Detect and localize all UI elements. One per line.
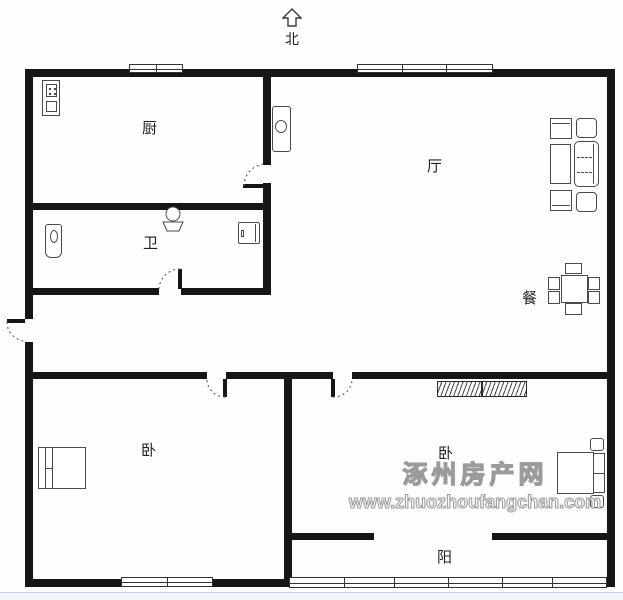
- entrance-door-leaf: [7, 319, 25, 323]
- sofa-cushion-line: [577, 172, 592, 173]
- wall-kitchen-bath: [25, 203, 271, 210]
- window-divider: [156, 65, 157, 72]
- wall-right: [607, 69, 615, 587]
- bedroom-right-door-arc: [333, 379, 352, 397]
- room-label-balcony: 阳: [437, 550, 452, 565]
- window-divider: [446, 65, 447, 72]
- watermark-url: www.zhuozhoufangchan.com: [335, 492, 615, 513]
- window-divider: [448, 578, 449, 587]
- room-label-bedroom-left: 卧: [141, 443, 156, 458]
- window-divider: [167, 578, 168, 586]
- wall-central-upper: [263, 69, 271, 165]
- entrance-door-arc: [7, 322, 26, 341]
- room-label-bath: 卫: [143, 236, 158, 251]
- wall-top: [25, 69, 615, 77]
- dining-chair-icon: [588, 291, 600, 304]
- window-midline: [358, 69, 492, 70]
- fridge-icon: [272, 106, 291, 152]
- sofa-cushion-line: [577, 157, 592, 158]
- sofa-icon: [574, 141, 599, 187]
- bed-right-nightstand-top: [590, 438, 604, 451]
- bed-left-icon: [38, 447, 86, 489]
- armchair-bottom-icon: [550, 190, 572, 211]
- bed-pillow-split: [45, 468, 52, 469]
- wall-bedrooms-top-3: [352, 372, 615, 379]
- wall-balcony-right: [492, 533, 607, 540]
- window-divider: [502, 578, 503, 587]
- bath-door-arc: [159, 269, 180, 289]
- wardrobe-icon: [437, 381, 482, 397]
- page-edge-strip: [0, 592, 623, 600]
- sofa-backrest-line: [593, 144, 594, 184]
- wall-bath-bottom-right: [181, 288, 271, 295]
- coffee-table-icon: [550, 144, 571, 184]
- room-label-bedroom-right: 卧: [438, 446, 453, 461]
- window-kitchen: [129, 64, 183, 73]
- wall-central-lower: [263, 183, 271, 295]
- window-bedroom-left: [121, 577, 213, 587]
- room-label-kitchen: 厨: [142, 121, 157, 136]
- wall-bedrooms-top-2: [226, 372, 333, 379]
- dining-table-icon: [561, 275, 588, 303]
- bed-pillow-line: [52, 448, 53, 488]
- north-label: 北: [280, 32, 304, 46]
- window-divider: [344, 578, 345, 587]
- bedroom-left-door-leaf: [223, 379, 227, 397]
- window-balcony: [289, 577, 607, 588]
- window-divider: [394, 578, 395, 587]
- room-label-living: 厅: [427, 159, 442, 174]
- bed-right-icon: [557, 452, 594, 494]
- north-arrow-icon: [282, 8, 302, 27]
- washer-knob: [241, 230, 244, 237]
- dining-chair-icon: [548, 291, 560, 304]
- window-divider: [402, 65, 403, 72]
- stove-burners-icon: [46, 84, 57, 97]
- fridge-detail: [275, 120, 287, 133]
- bedroom-right-door-leaf: [331, 379, 335, 397]
- bed-pillow-split: [594, 473, 604, 474]
- compass: 北: [280, 8, 304, 46]
- kitchen-door-leaf: [243, 184, 266, 188]
- side-table-bottom-icon: [576, 192, 597, 212]
- toilet-bowl: [50, 230, 58, 243]
- dining-chair-icon: [588, 277, 600, 290]
- bath-door-leaf: [178, 269, 182, 289]
- dining-chair-icon: [565, 263, 582, 274]
- stove-sink-icon: [46, 101, 57, 112]
- armchair-top-icon: [550, 118, 572, 139]
- window-divider: [552, 578, 553, 587]
- armchair-line: [552, 205, 570, 206]
- wall-bedrooms-top-1: [25, 372, 207, 379]
- wall-bedroom-divider: [284, 379, 292, 579]
- side-table-top-icon: [576, 118, 597, 138]
- floorplan: 北: [0, 0, 623, 600]
- washing-machine-icon: [238, 222, 260, 244]
- window-living: [357, 64, 493, 73]
- washer-panel-line: [255, 224, 256, 242]
- toilet-icon: [45, 224, 62, 258]
- wall-balcony-left: [292, 533, 374, 540]
- bed-right-nightstand-bottom: [590, 495, 604, 508]
- dining-chair-icon: [565, 303, 582, 315]
- bed-right-pillows: [593, 453, 605, 493]
- armchair-line: [552, 123, 570, 124]
- wall-bath-bottom-left: [25, 288, 159, 295]
- wardrobe-icon: [482, 381, 527, 397]
- wall-left-upper: [25, 69, 33, 319]
- room-label-dining: 餐: [522, 291, 537, 306]
- dining-chair-icon: [548, 277, 560, 290]
